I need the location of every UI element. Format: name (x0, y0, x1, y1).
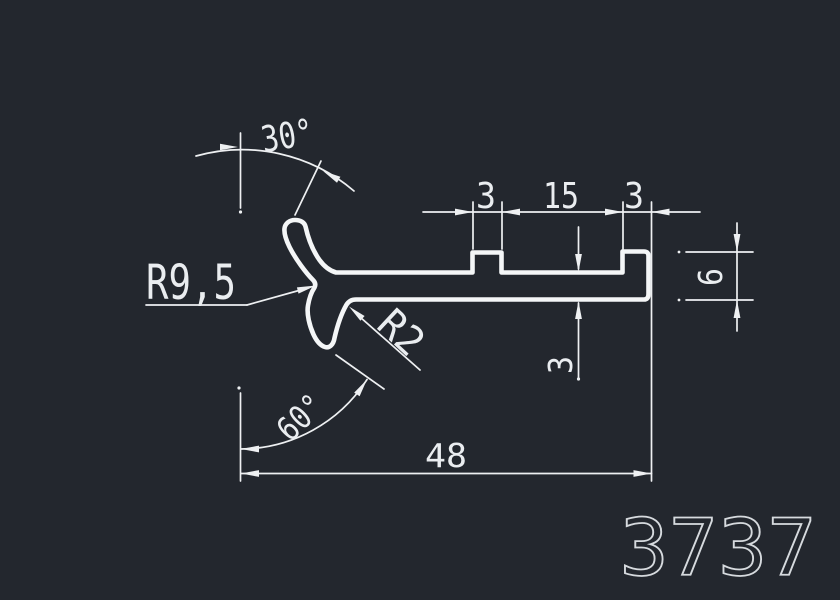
dim-text-tab-right: 3 (624, 176, 644, 217)
technical-drawing-canvas: 30° 60° R9,5 R2 3 15 3 (0, 0, 840, 600)
dim-text-radius-upper: R9,5 (146, 255, 236, 311)
dimension-line-end-dot (577, 377, 580, 380)
dim-text-overall-width: 48 (425, 436, 467, 475)
dim-text-wall-thickness: 3 (541, 356, 580, 374)
extension-line-end-dot (237, 386, 240, 389)
cad-profile-drawing: 30° 60° R9,5 R2 3 15 3 (0, 0, 840, 600)
dim-text-tab-left: 3 (476, 176, 496, 217)
dim-text-lip-height: 6 (691, 268, 730, 286)
part-number: 3737 (620, 504, 817, 594)
extension-line-start-dot (678, 299, 681, 302)
extension-line-start-dot (678, 251, 681, 254)
dim-text-tab-gap: 15 (543, 176, 579, 217)
extension-line-end-dot (239, 210, 242, 213)
